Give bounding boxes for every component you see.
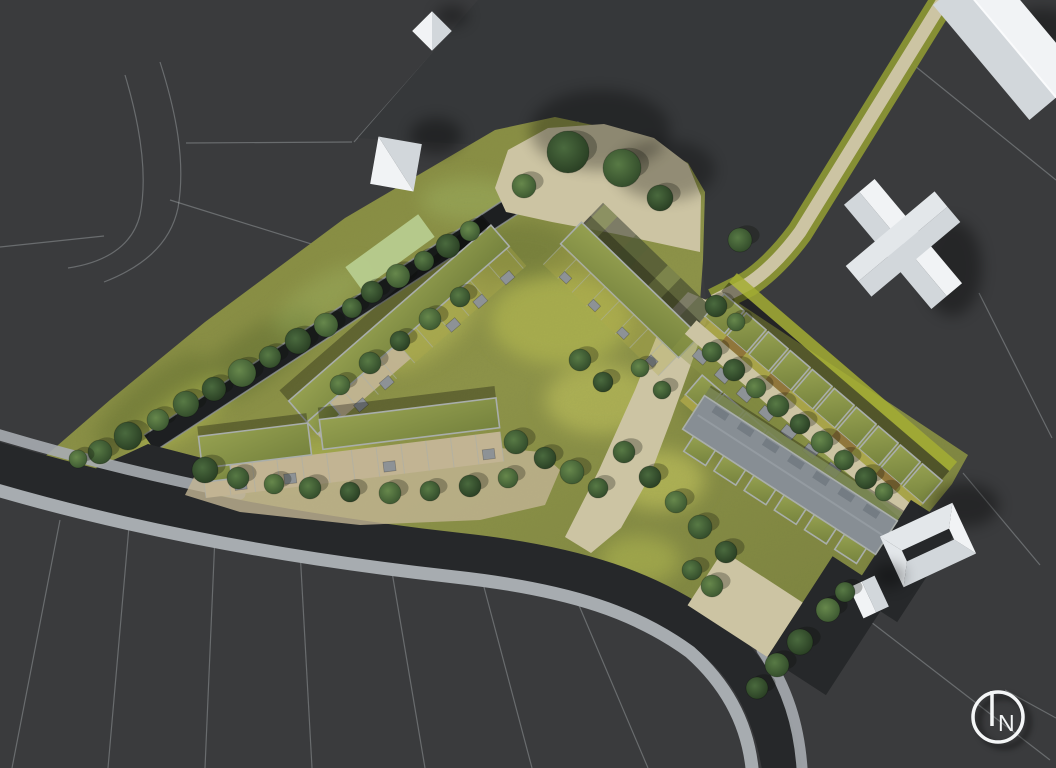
- tree: [653, 381, 671, 399]
- tree: [450, 287, 470, 307]
- tree: [603, 149, 641, 187]
- tree: [314, 313, 338, 337]
- tree: [593, 372, 613, 392]
- tree: [534, 447, 556, 469]
- tree: [723, 359, 745, 381]
- tree: [340, 482, 360, 502]
- tree: [512, 174, 536, 198]
- tree: [816, 598, 840, 622]
- tree: [498, 468, 518, 488]
- tree: [665, 491, 687, 513]
- tree: [701, 575, 723, 597]
- tree: [767, 395, 789, 417]
- tree: [547, 131, 589, 173]
- tree: [227, 467, 249, 489]
- tree: [715, 541, 737, 563]
- tree: [264, 474, 284, 494]
- tree: [147, 409, 169, 431]
- tree: [569, 349, 591, 371]
- tree: [834, 450, 854, 470]
- tree: [379, 482, 401, 504]
- tree: [787, 629, 813, 655]
- tree: [746, 378, 766, 398]
- site-plan-canvas: N: [0, 0, 1056, 768]
- tree: [359, 352, 381, 374]
- tree: [202, 377, 226, 401]
- tree: [790, 414, 810, 434]
- tree: [299, 477, 321, 499]
- tree: [560, 460, 584, 484]
- tree: [192, 457, 218, 483]
- context-building-pyramid: [370, 137, 422, 192]
- tree: [639, 466, 661, 488]
- tree: [419, 308, 441, 330]
- tree: [835, 582, 855, 602]
- tree: [682, 560, 702, 580]
- tree: [285, 328, 311, 354]
- tree: [460, 221, 480, 241]
- tree: [330, 375, 350, 395]
- tree: [390, 331, 410, 351]
- tree: [436, 234, 460, 258]
- tree: [69, 450, 87, 468]
- tree: [613, 441, 635, 463]
- tree: [702, 342, 722, 362]
- tree: [386, 264, 410, 288]
- tree: [765, 653, 789, 677]
- tree: [746, 677, 768, 699]
- tree: [342, 298, 362, 318]
- tree: [631, 359, 649, 377]
- tree: [727, 313, 745, 331]
- tree: [875, 483, 893, 501]
- tree: [811, 431, 833, 453]
- north-arrow-label: N: [998, 710, 1015, 736]
- tree: [414, 251, 434, 271]
- tree: [728, 228, 752, 252]
- tree: [688, 515, 712, 539]
- tree: [705, 295, 727, 317]
- tree: [504, 430, 528, 454]
- tree: [459, 475, 481, 497]
- tree: [855, 467, 877, 489]
- site-plan-rendering: N: [0, 0, 1056, 768]
- tree: [647, 185, 673, 211]
- tree: [361, 281, 383, 303]
- tree: [588, 478, 608, 498]
- tree: [114, 422, 142, 450]
- tree: [173, 391, 199, 417]
- tree: [420, 481, 440, 501]
- tree: [259, 346, 281, 368]
- tree: [228, 359, 256, 387]
